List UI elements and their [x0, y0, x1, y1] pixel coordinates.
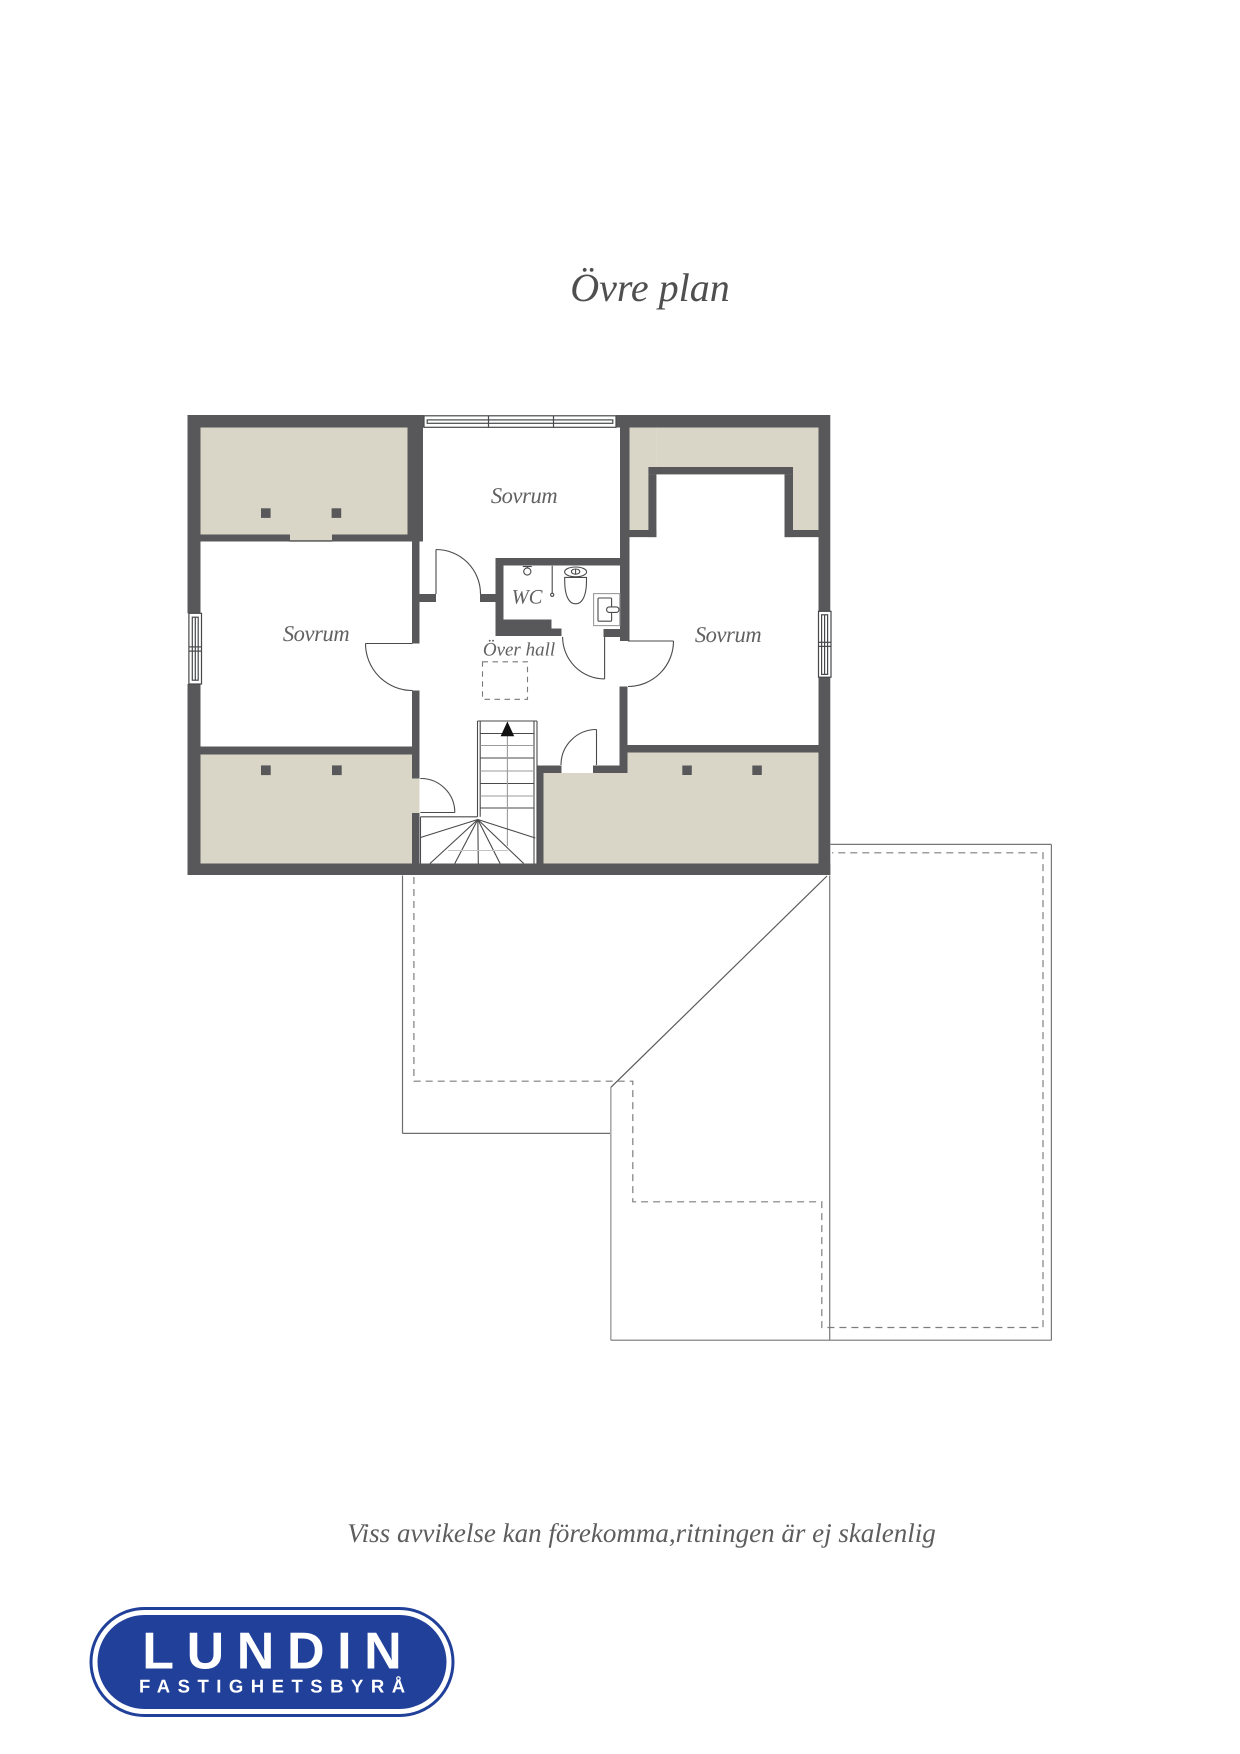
svg-text:Sovrum: Sovrum [695, 622, 761, 647]
svg-text:LUNDIN: LUNDIN [142, 1623, 414, 1681]
svg-text:WC: WC [512, 587, 543, 609]
svg-text:Sovrum: Sovrum [283, 621, 349, 646]
svg-text:Viss avvikelse kan förekomma,r: Viss avvikelse kan förekomma,ritningen ä… [347, 1518, 936, 1548]
svg-text:Övre plan: Övre plan [570, 265, 730, 310]
svg-text:Sovrum: Sovrum [491, 483, 557, 508]
svg-text:Över hall: Över hall [483, 640, 555, 661]
svg-text:FASTIGHETSBYRÅ: FASTIGHETSBYRÅ [139, 1676, 413, 1697]
